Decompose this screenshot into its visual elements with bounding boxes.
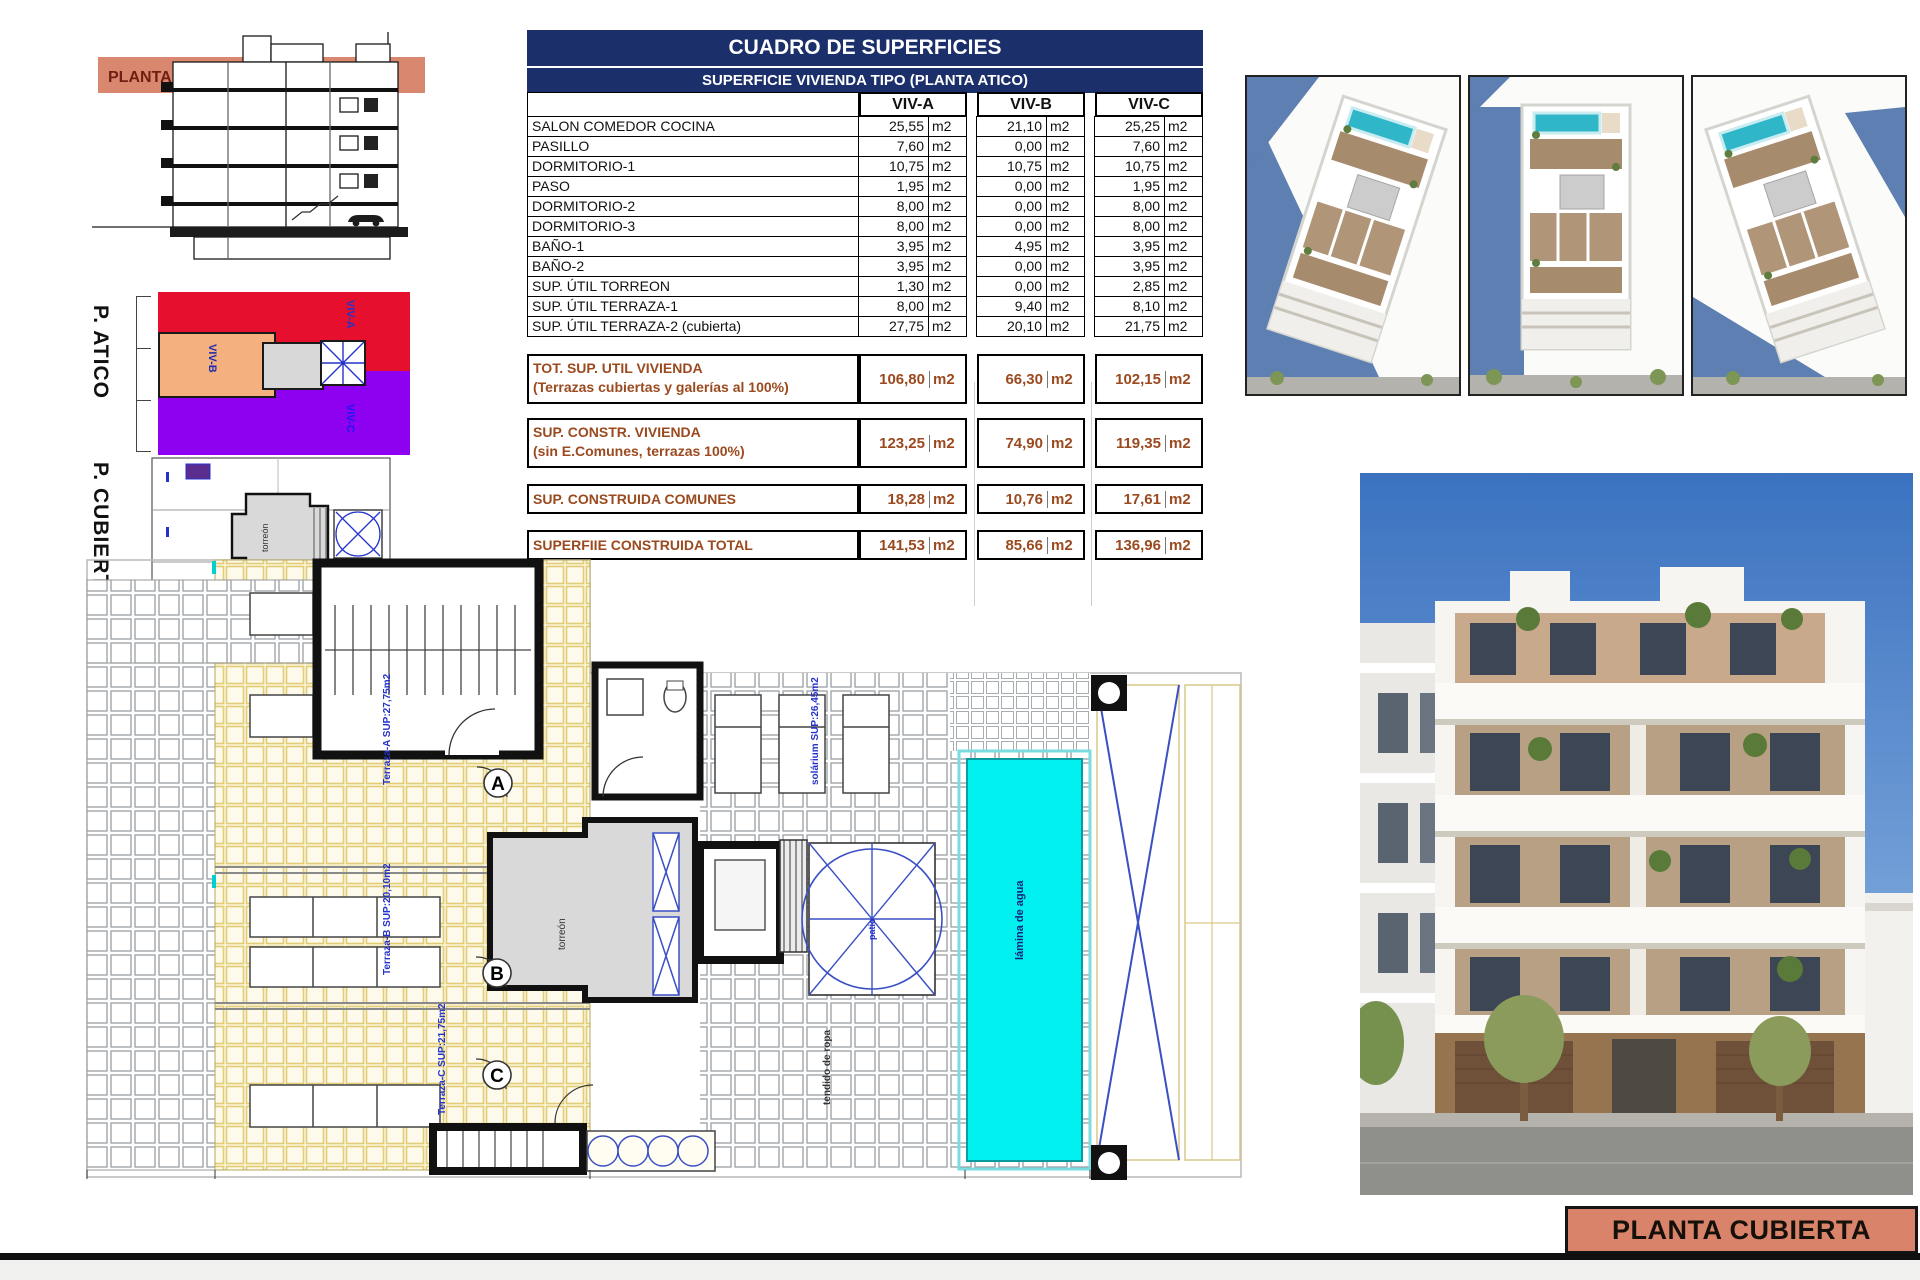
table-row: DORMITORIO-38,00m20,00m28,00m2	[527, 216, 1203, 237]
table-row: BAÑO-23,95m20,00m23,95m2	[527, 256, 1203, 277]
terraza-c-label: Terraza-C SUP:21,75m2	[437, 1003, 448, 1115]
water-heaters	[587, 1131, 715, 1171]
building-section-drawing: PLANTA CUBIERTA	[78, 24, 432, 276]
atico-plan: VIV-A VIV-B VIV-C	[158, 292, 410, 455]
atico-side-label: P. ATICO	[88, 305, 112, 399]
skylight-top	[186, 464, 210, 479]
torreon-label: torreón	[557, 918, 568, 950]
roof-pool	[1534, 113, 1600, 133]
sheet-title-box: PLANTA CUBIERTA	[1565, 1206, 1918, 1254]
total-row-constr: SUP. CONSTR. VIVIENDA(sin E.Comunes, ter…	[527, 418, 1203, 468]
table-subtitle: SUPERFICIE VIVIENDA TIPO (PLANTA ATICO)	[527, 68, 1203, 93]
section-svg: PLANTA CUBIERTA	[78, 24, 432, 276]
table-row: SUP. ÚTIL TERRAZA-2 (cubierta)27,75m220,…	[527, 316, 1203, 337]
bathroom	[595, 665, 700, 797]
col-viv-b: VIV-B	[977, 92, 1085, 117]
table-header-row: VIV-A VIV-B VIV-C	[527, 93, 1203, 117]
terraza-a-label: Terraza-A SUP:27,75m2	[382, 673, 393, 785]
solarium-label: solárium SUP:26,45m2	[810, 677, 821, 785]
letter-b: B	[490, 964, 504, 985]
facade-render	[1360, 473, 1913, 1195]
terraza-b-label: Terraza-B SUP:20,10m2	[382, 863, 393, 975]
table-row: BAÑO-13,95m24,95m23,95m2	[527, 236, 1203, 257]
skylight-x-panel	[1097, 685, 1240, 1160]
aerial-render-2	[1468, 75, 1684, 396]
letter-a: A	[491, 774, 505, 795]
table-row: SUP. ÚTIL TORREON1,30m20,00m22,85m2	[527, 276, 1203, 297]
ramp-hatch	[780, 840, 807, 952]
table-row: SUP. ÚTIL TERRAZA-18,00m29,40m28,10m2	[527, 296, 1203, 317]
footer-strip	[0, 1260, 1920, 1280]
laundry-label: tendido de ropa	[822, 1030, 833, 1105]
aerial-render-3	[1691, 75, 1907, 396]
shaft-cross-icon	[320, 340, 366, 386]
table-row: PASILLO7,60m20,00m27,60m2	[527, 136, 1203, 157]
surfaces-table: CUADRO DE SUPERFICIES SUPERFICIE VIVIEND…	[527, 30, 1203, 560]
label-viv-a: VIV-A	[344, 300, 356, 329]
col-viv-a: VIV-A	[859, 92, 967, 117]
patio-label: patio	[867, 918, 877, 940]
letter-c: C	[490, 1066, 504, 1087]
table-row: DORMITORIO-110,75m210,75m210,75m2	[527, 156, 1203, 177]
pool: lámina de agua	[959, 751, 1090, 1169]
roof-plan: torreón patio A B C lámina de agua	[85, 545, 1245, 1180]
total-row-comunes: SUP. CONSTRUIDA COMUNES 18,28m2 10,76m2 …	[527, 484, 1203, 514]
table-title: CUADRO DE SUPERFICIES	[527, 30, 1203, 66]
aerial-render-1	[1245, 75, 1461, 396]
table-row: PASO1,95m20,00m21,95m2	[527, 176, 1203, 197]
footer-divider	[0, 1253, 1920, 1260]
white-tile-left	[87, 580, 215, 1170]
zone-common-core	[262, 342, 324, 390]
atico-dimension-bracket	[136, 296, 157, 452]
label-viv-c: VIV-C	[344, 404, 356, 433]
entrance-door	[1612, 1039, 1676, 1123]
white-tile-walkway	[950, 673, 1090, 751]
sheet-title: PLANTA CUBIERTA	[1612, 1215, 1871, 1246]
table-row: DORMITORIO-28,00m20,00m28,00m2	[527, 196, 1203, 217]
label-viv-b: VIV-B	[206, 344, 218, 373]
table-row: SALON COMEDOR COCINA25,55m221,10m225,25m…	[527, 116, 1203, 137]
pool-label: lámina de agua	[1014, 880, 1026, 960]
total-row-util: TOT. SUP. UTIL VIVIENDA(Terrazas cubiert…	[527, 354, 1203, 404]
col-viv-c: VIV-C	[1095, 92, 1203, 117]
main-staircase	[317, 563, 539, 755]
